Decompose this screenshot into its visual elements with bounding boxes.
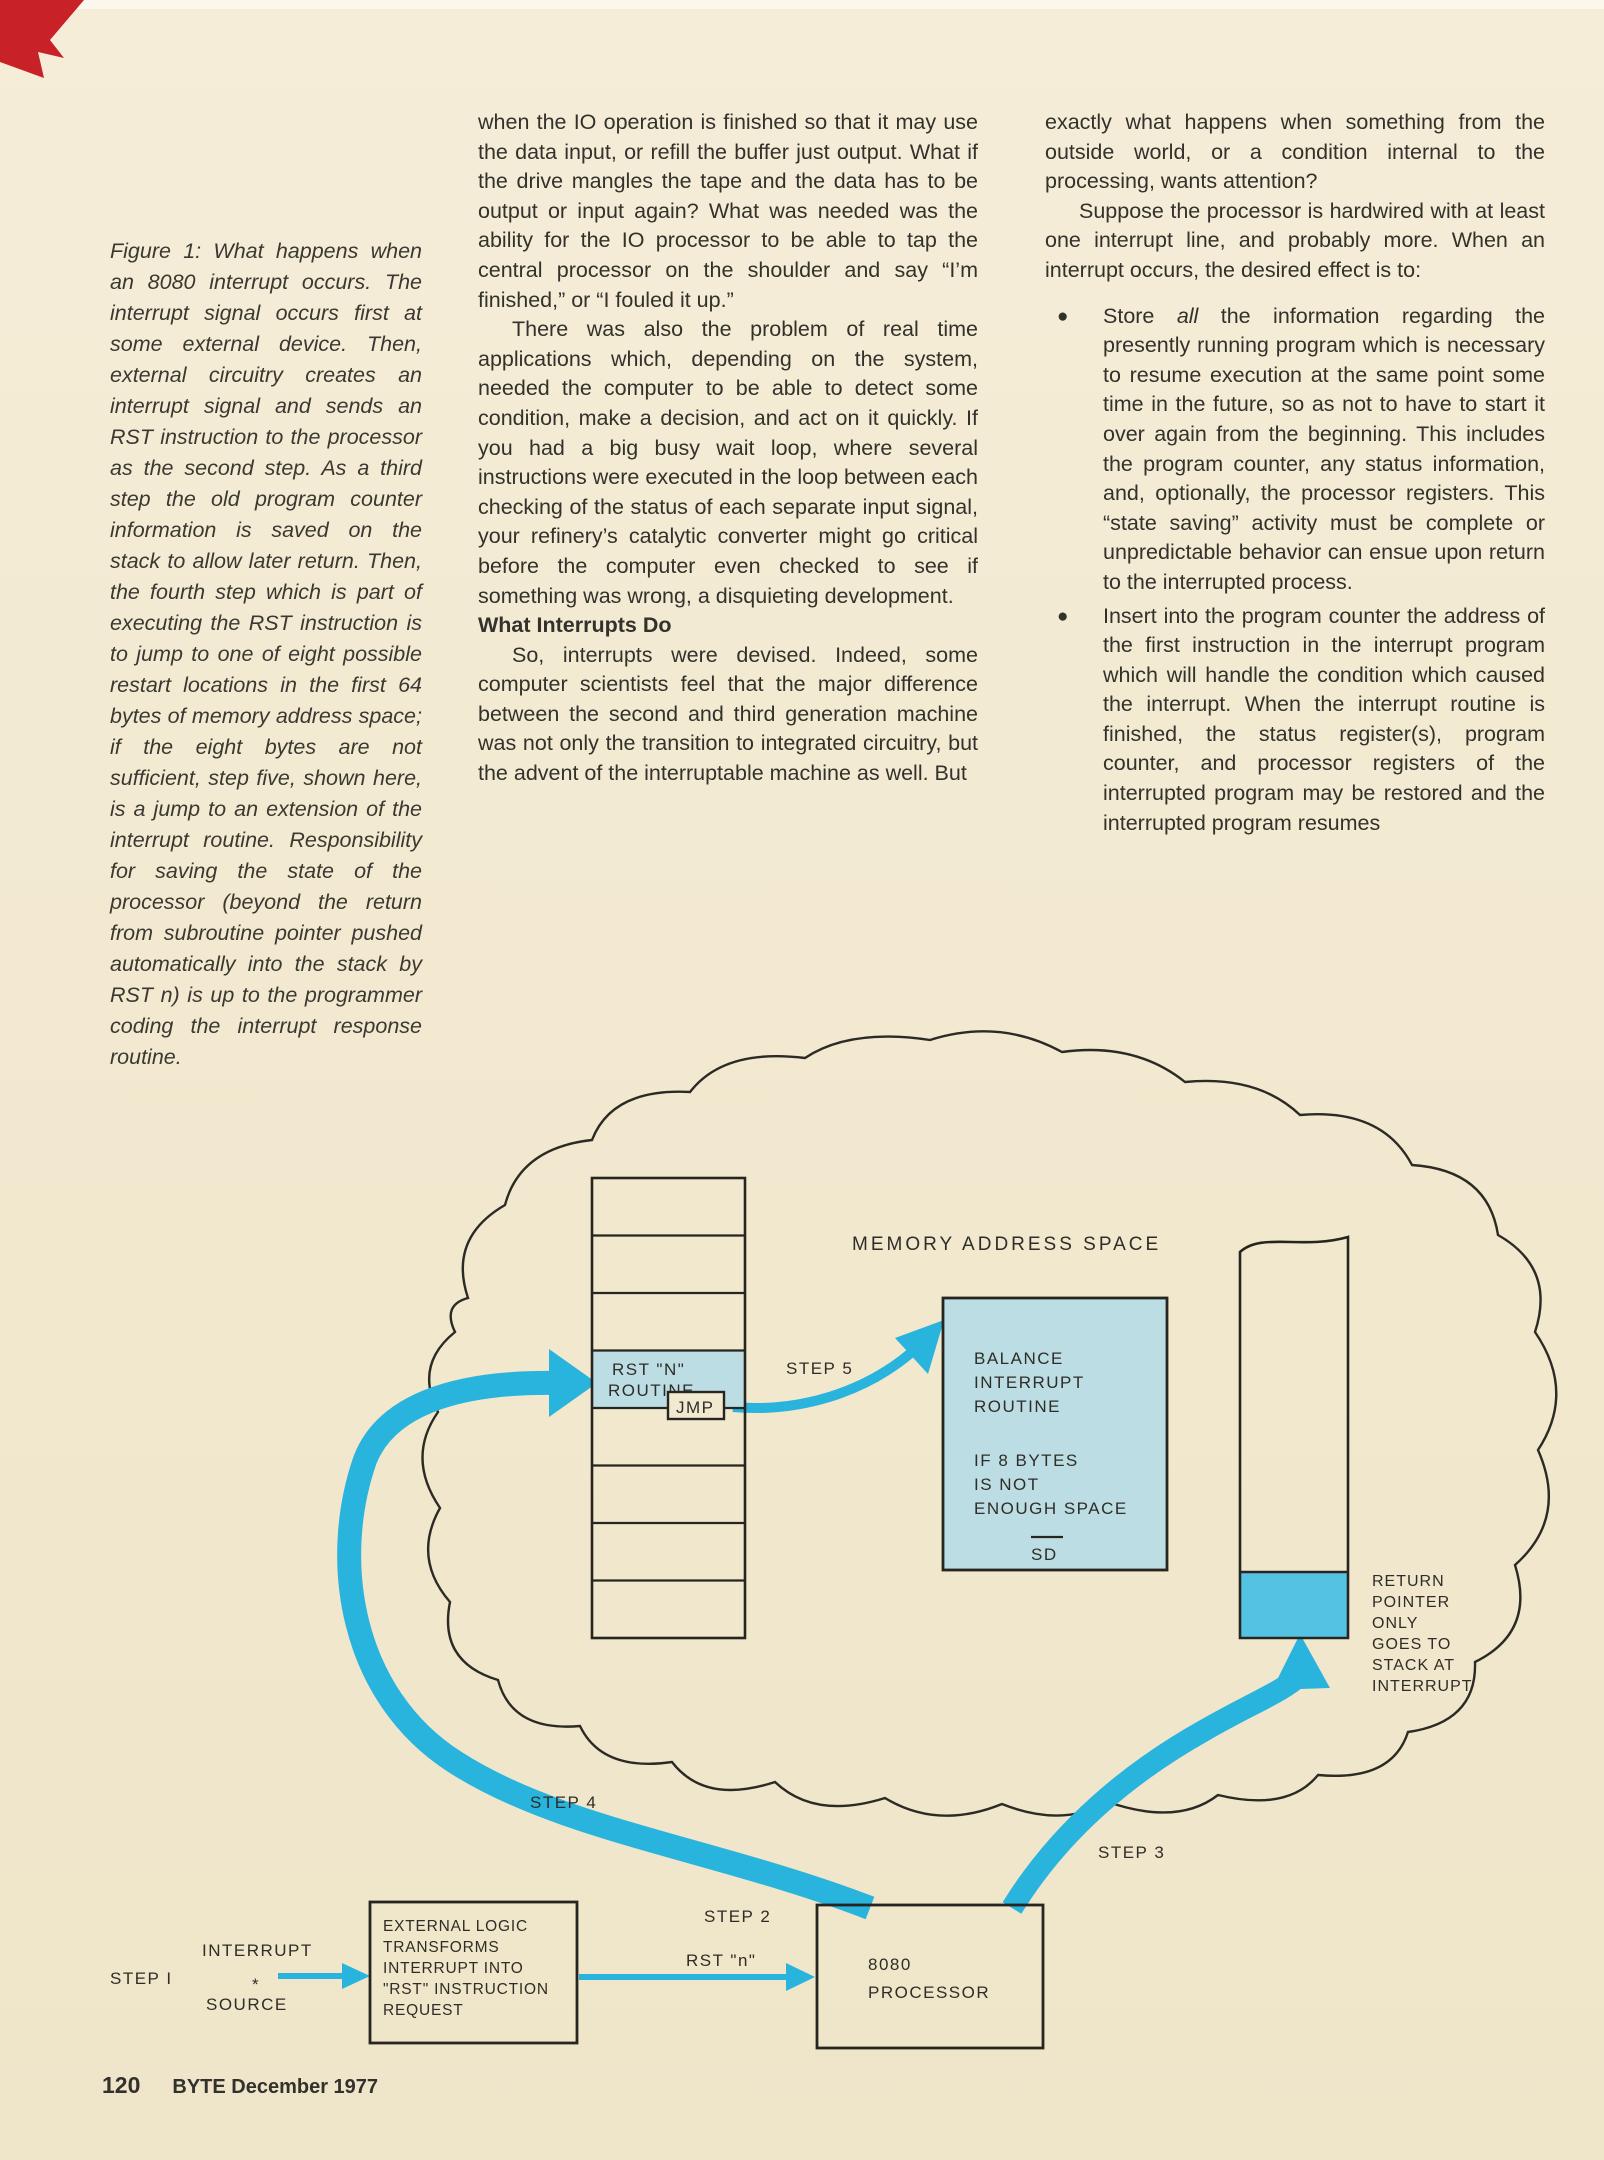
step2-label: STEP 2	[704, 1907, 771, 1926]
processor-box-line2: PROCESSOR	[868, 1983, 990, 2002]
step5-label: STEP 5	[786, 1359, 853, 1378]
balance-box-line5: IS NOT	[974, 1475, 1040, 1494]
page-footer: 120BYTE December 1977	[102, 2072, 378, 2099]
stack-label-line6: INTERRUPT	[1372, 1678, 1473, 1695]
balance-box-line3: ROUTINE	[974, 1397, 1061, 1416]
stack-label-line5: STACK AT	[1372, 1657, 1455, 1674]
interrupt-source-star: *	[252, 1975, 260, 1994]
step3-arrow	[1012, 1676, 1299, 1908]
rst-routine-label-line1: RST "N"	[612, 1360, 685, 1379]
step3-arrowhead	[1272, 1634, 1330, 1690]
stack-label-line1: RETURN	[1372, 1573, 1445, 1590]
external-box-line4: "RST" INSTRUCTION	[383, 1981, 549, 1998]
step4-arrow	[349, 1383, 870, 1908]
processor-box-line1: 8080	[868, 1955, 912, 1974]
balance-box-line4: IF 8 BYTES	[974, 1451, 1079, 1470]
balance-box-line2: INTERRUPT	[974, 1373, 1085, 1392]
figure-1-diagram: RST "N" ROUTINE JMP BALANCE INTERRUPT RO…	[0, 0, 1604, 2160]
magazine-name: BYTE December 1977	[172, 2076, 378, 2098]
step2-arrowhead	[786, 1963, 815, 1991]
interrupt-source-line1: INTERRUPT	[202, 1941, 313, 1960]
stack-return-pointer-fill	[1241, 1572, 1347, 1637]
external-box-line5: REQUEST	[383, 2002, 464, 2019]
rst-n-label: RST "n"	[686, 1951, 756, 1970]
balance-box-line6: ENOUGH SPACE	[974, 1499, 1128, 1518]
sd-label: SD	[1031, 1545, 1058, 1564]
balance-routine-box	[943, 1298, 1167, 1570]
step4-arrowhead	[549, 1349, 597, 1417]
diagram-title: MEMORY ADDRESS SPACE	[852, 1234, 1161, 1255]
stack-label-line2: POINTER	[1372, 1594, 1450, 1611]
step1-arrowhead	[342, 1963, 370, 1989]
step1-label: STEP I	[110, 1969, 173, 1988]
page-number: 120	[102, 2072, 140, 2098]
step4-label: STEP 4	[530, 1793, 597, 1812]
jmp-label: JMP	[676, 1398, 715, 1417]
balance-box-line1: BALANCE	[974, 1349, 1064, 1368]
stack-label-line4: GOES TO	[1372, 1636, 1451, 1653]
interrupt-source-line2: SOURCE	[206, 1995, 288, 2014]
step3-label: STEP 3	[1098, 1843, 1165, 1862]
external-box-line3: INTERRUPT INTO	[383, 1960, 524, 1977]
external-box-line1: EXTERNAL LOGIC	[383, 1918, 528, 1935]
external-box-line2: TRANSFORMS	[383, 1939, 500, 1956]
stack-label-line3: ONLY	[1372, 1615, 1418, 1632]
processor-box	[817, 1905, 1043, 2048]
